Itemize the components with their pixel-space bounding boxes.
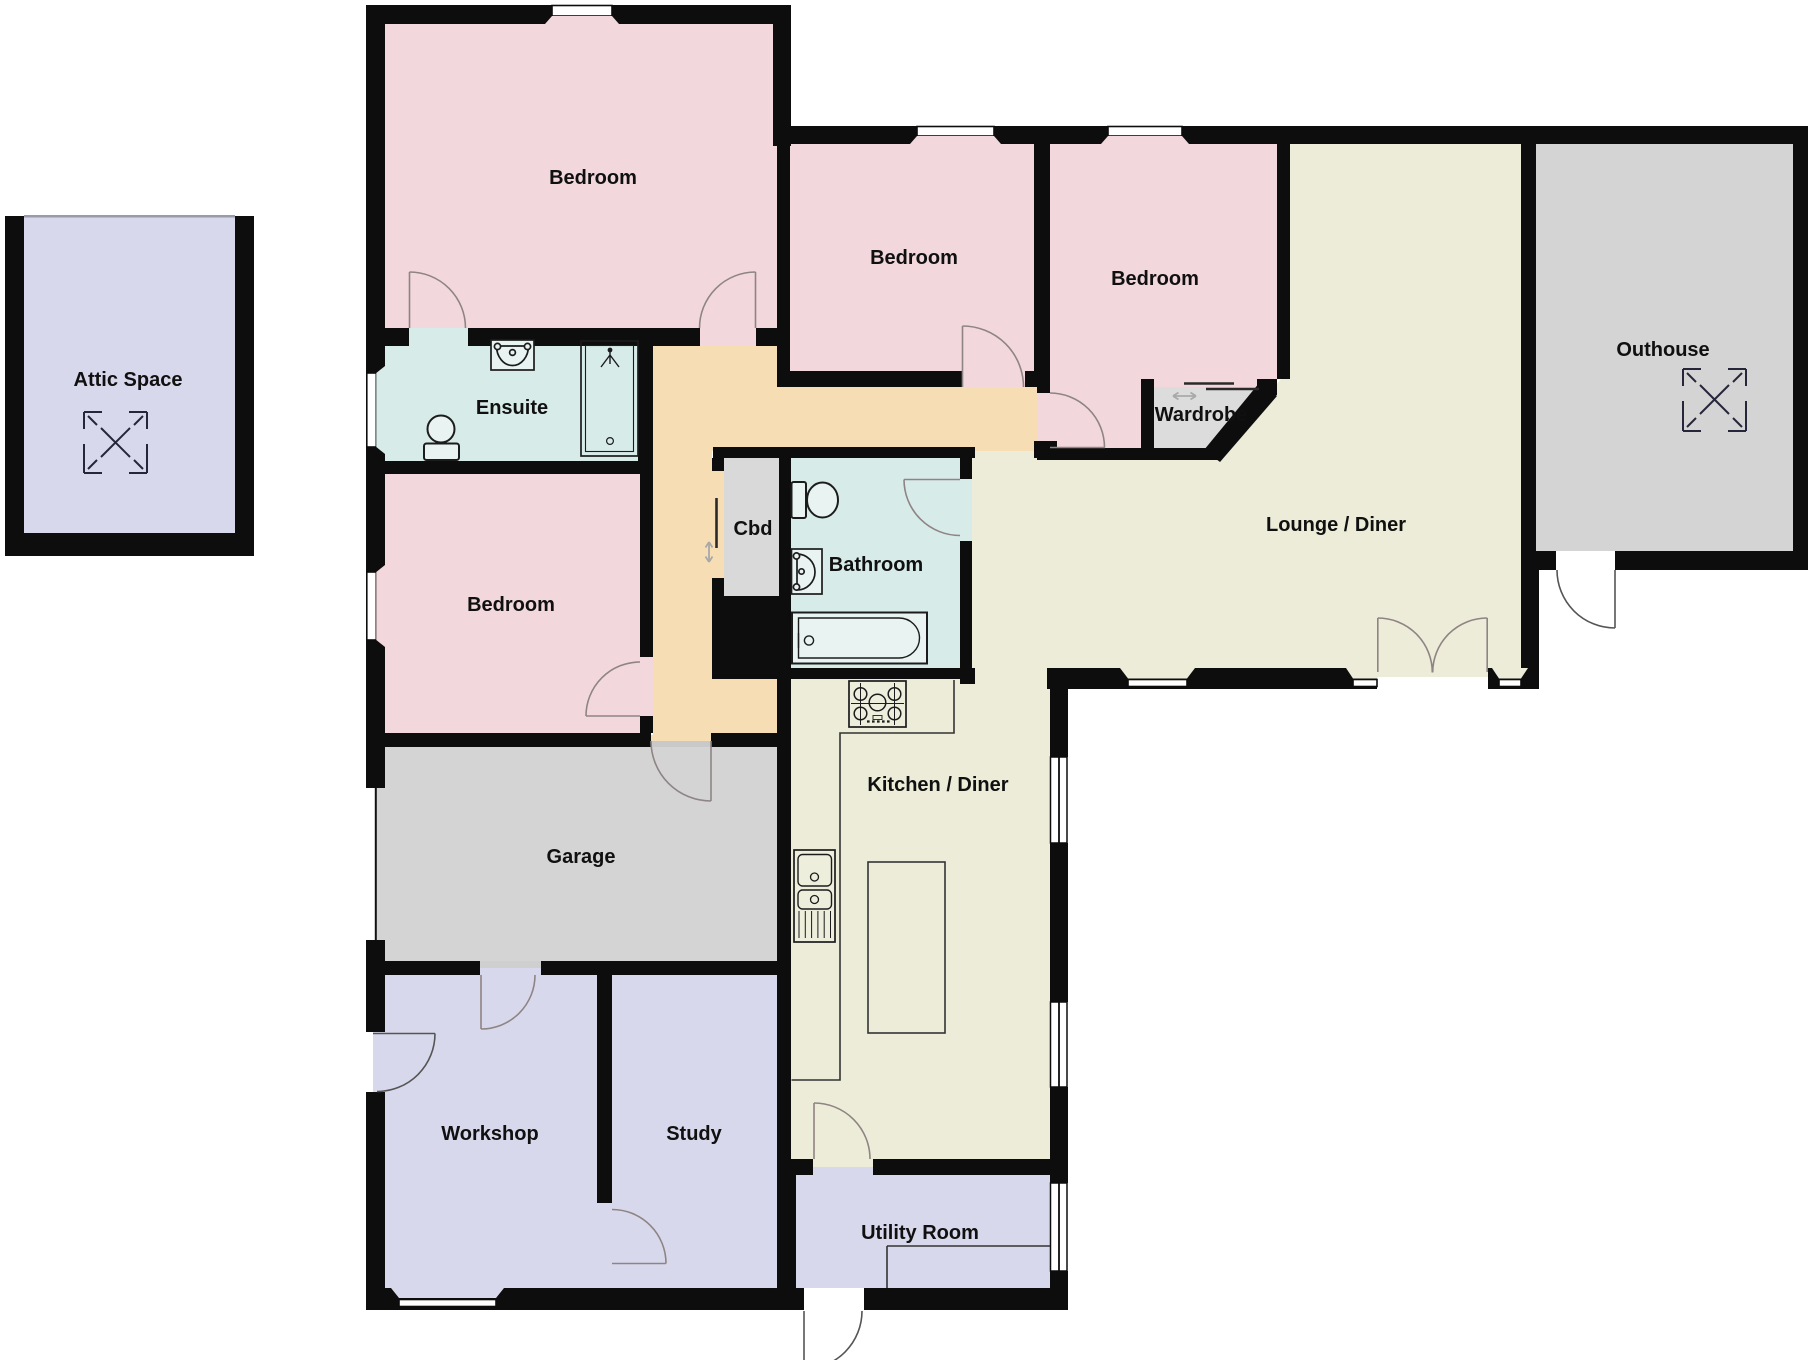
svg-text:Wardrobe: Wardrobe (1155, 404, 1248, 426)
svg-text:Cbd: Cbd (734, 518, 773, 540)
svg-text:Ensuite: Ensuite (476, 397, 548, 419)
svg-text:Bedroom: Bedroom (467, 594, 555, 616)
svg-text:Attic Space: Attic Space (74, 369, 183, 391)
svg-text:Utility Room: Utility Room (861, 1222, 979, 1244)
svg-text:Bedroom: Bedroom (549, 167, 637, 189)
svg-text:Study: Study (666, 1123, 722, 1145)
svg-text:Kitchen / Diner: Kitchen / Diner (867, 774, 1008, 796)
svg-text:Garage: Garage (547, 846, 616, 868)
svg-text:Lounge / Diner: Lounge / Diner (1266, 514, 1406, 536)
svg-text:Workshop: Workshop (441, 1123, 538, 1145)
svg-text:Outhouse: Outhouse (1616, 339, 1709, 361)
svg-text:Bedroom: Bedroom (870, 247, 958, 269)
svg-text:Bathroom: Bathroom (829, 554, 923, 576)
svg-text:Bedroom: Bedroom (1111, 268, 1199, 290)
